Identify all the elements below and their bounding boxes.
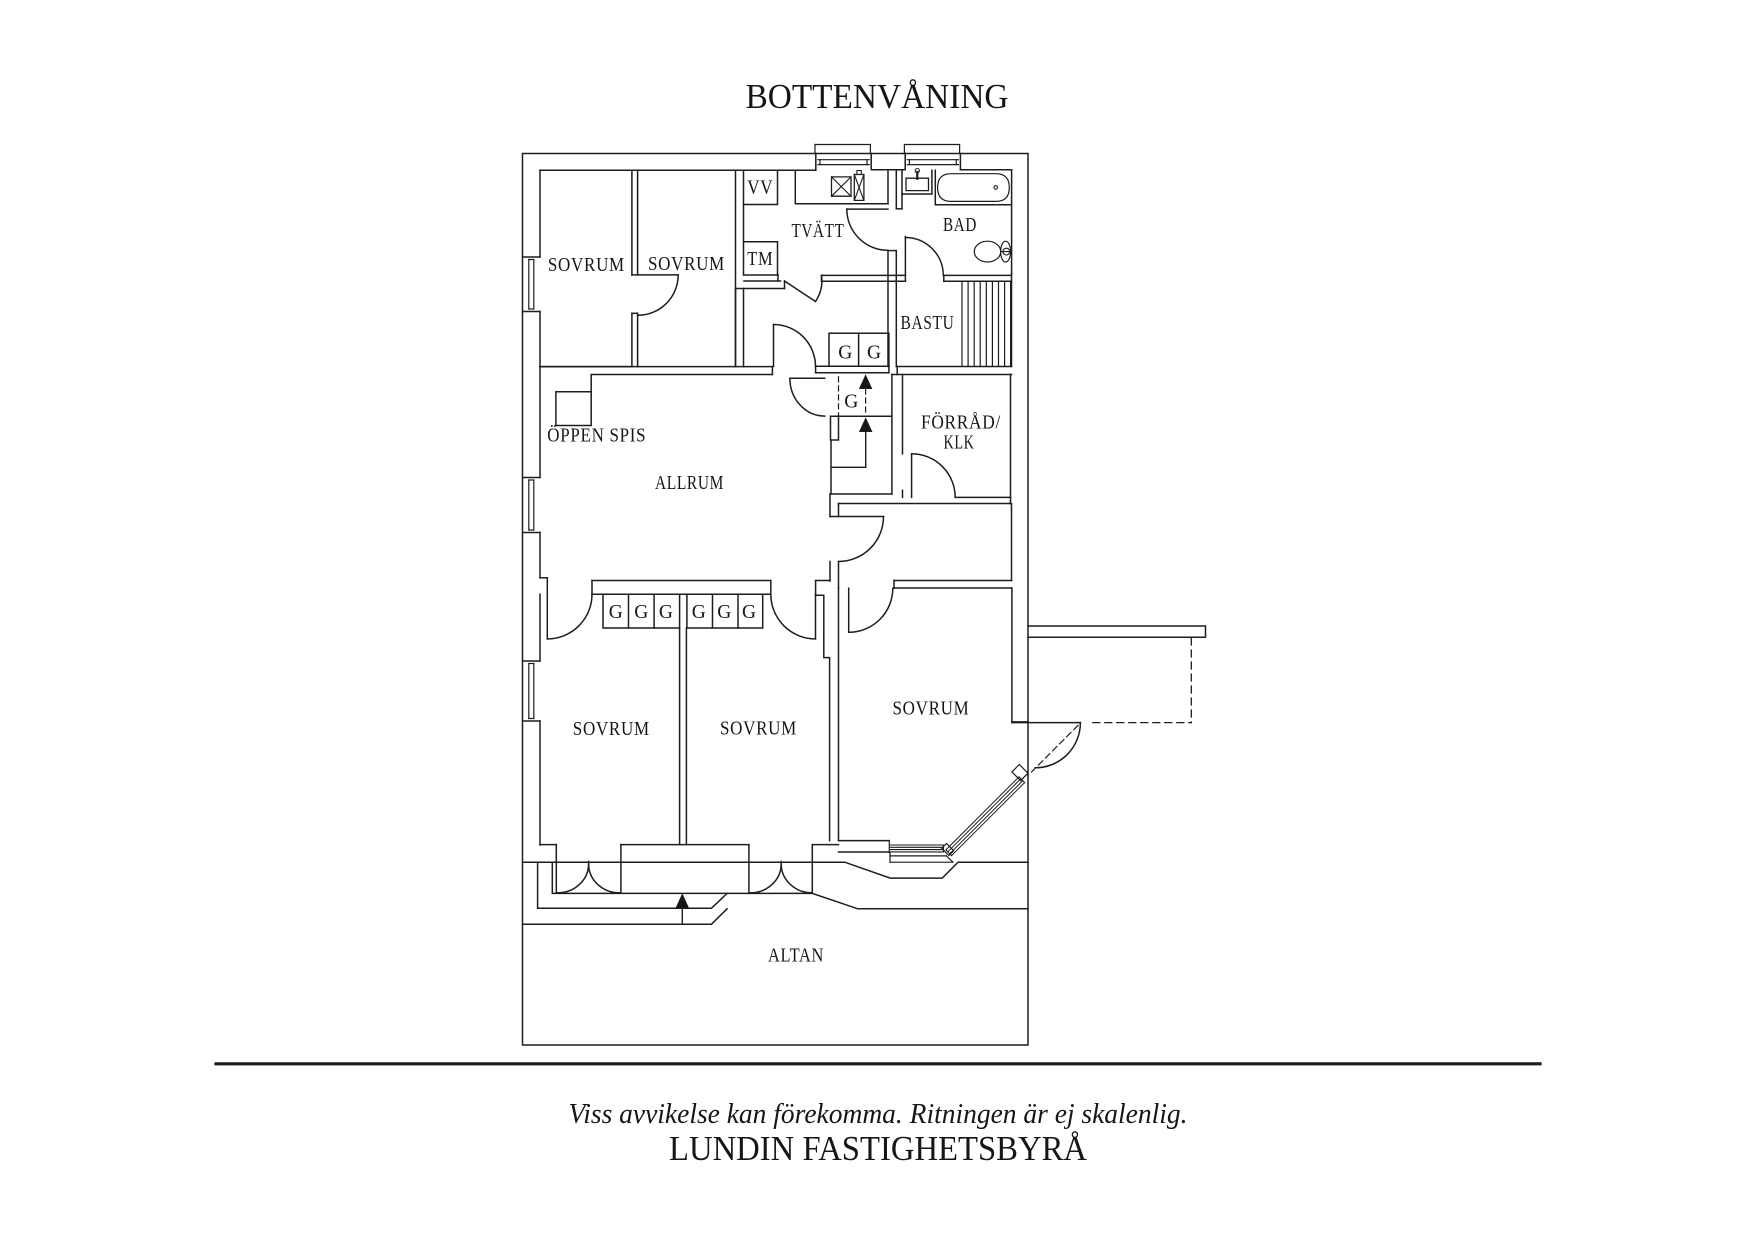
- svg-text:SOVRUM: SOVRUM: [893, 699, 970, 720]
- svg-text:TM: TM: [747, 249, 773, 270]
- svg-text:LUNDIN FASTIGHETSBYRÅ: LUNDIN FASTIGHETSBYRÅ: [669, 1129, 1088, 1168]
- svg-text:G: G: [838, 343, 852, 364]
- svg-text:G: G: [692, 602, 706, 623]
- svg-text:BOTTENVÅNING: BOTTENVÅNING: [746, 78, 1009, 116]
- svg-text:G: G: [867, 343, 881, 364]
- svg-text:TVÄTT: TVÄTT: [792, 221, 845, 242]
- svg-text:G: G: [717, 602, 731, 623]
- svg-text:G: G: [659, 602, 673, 623]
- svg-text:BASTU: BASTU: [901, 313, 955, 334]
- svg-text:G: G: [609, 602, 623, 623]
- svg-text:SOVRUM: SOVRUM: [720, 719, 797, 740]
- svg-text:SOVRUM: SOVRUM: [548, 255, 625, 276]
- svg-text:FÖRRÅD/: FÖRRÅD/: [921, 413, 1001, 434]
- svg-text:ALTAN: ALTAN: [768, 946, 824, 967]
- svg-text:G: G: [742, 602, 756, 623]
- svg-text:ALLRUM: ALLRUM: [655, 473, 724, 494]
- svg-text:SOVRUM: SOVRUM: [648, 254, 725, 275]
- svg-text:G: G: [844, 392, 858, 413]
- svg-text:ÖPPEN SPIS: ÖPPEN SPIS: [547, 426, 646, 447]
- svg-text:SOVRUM: SOVRUM: [573, 719, 650, 740]
- svg-text:KLK: KLK: [944, 433, 975, 454]
- svg-text:G: G: [634, 602, 648, 623]
- svg-text:BAD: BAD: [943, 215, 977, 236]
- svg-text:VV: VV: [747, 178, 773, 199]
- svg-text:Viss avvikelse kan förekomma.: Viss avvikelse kan förekomma. Ritningen …: [569, 1098, 1188, 1130]
